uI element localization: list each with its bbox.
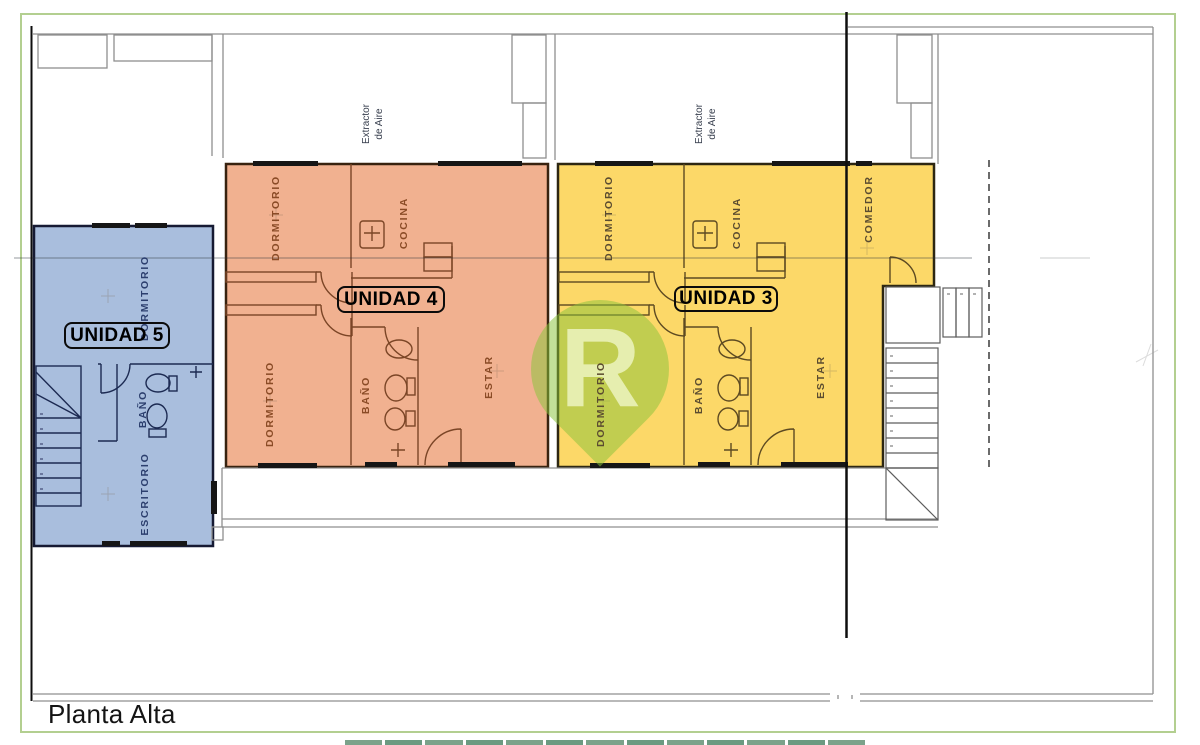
room-label-u3-bano: BAÑO bbox=[691, 335, 707, 455]
room-label-u3-estar: ESTAR bbox=[813, 317, 829, 437]
room-label-u3-cocina: COCINA bbox=[729, 163, 745, 283]
room-label-u4-dormitorio2: DORMITORIO bbox=[262, 344, 278, 464]
room-label-u4-bano: BAÑO bbox=[358, 335, 374, 455]
extractor-label-unit4: Extractor de Aire bbox=[358, 84, 388, 164]
staircase-right bbox=[886, 287, 982, 520]
room-label-u3-comedor: COMEDOR bbox=[861, 149, 877, 269]
room-label-u3-dormitorio1: DORMITORIO bbox=[601, 158, 617, 278]
unit5-area bbox=[34, 226, 213, 546]
unit3-badge-label: UNIDAD 3 bbox=[679, 288, 773, 310]
dimension-mark bbox=[1136, 344, 1158, 366]
unit4-badge: UNIDAD 4 bbox=[337, 286, 445, 313]
room-label-u4-estar: ESTAR bbox=[481, 317, 497, 437]
extractor-label-unit3: Extractor de Aire bbox=[691, 84, 721, 164]
cropped-thumbnail-strip bbox=[345, 740, 865, 745]
floor-plan-page: R Extractor de Aire Extractor de Aire DO… bbox=[0, 0, 1200, 745]
room-label-u4-dormitorio1: DORMITORIO bbox=[268, 158, 284, 278]
room-label-u4-cocina: COCINA bbox=[396, 163, 412, 283]
room-label-u5-escritorio: ESCRITORIO bbox=[137, 434, 153, 554]
unit4-badge-label: UNIDAD 4 bbox=[344, 289, 438, 311]
room-label-u3-dormitorio2: DORMITORIO bbox=[593, 344, 609, 464]
unit5-badge: UNIDAD 5 bbox=[64, 322, 170, 349]
plan-title: Planta Alta bbox=[48, 699, 176, 730]
unit3-badge: UNIDAD 3 bbox=[674, 286, 778, 312]
unit5-badge-label: UNIDAD 5 bbox=[70, 325, 164, 347]
